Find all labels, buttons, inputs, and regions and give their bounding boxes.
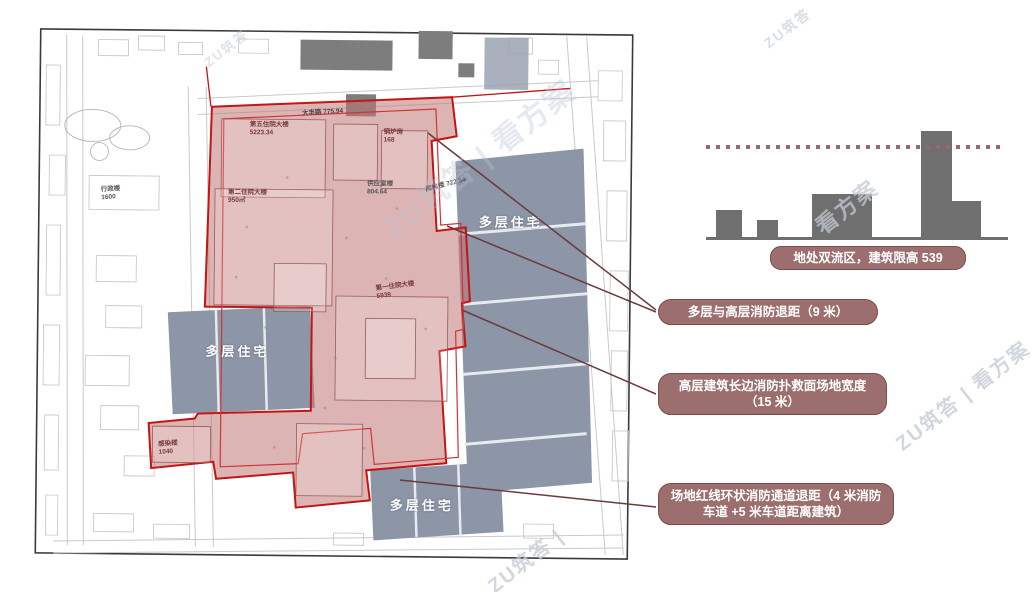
- callout-fire-setback: 多层与高层消防退距（9 米）: [658, 299, 878, 325]
- callout-rescue-site-width: 高层建筑长边消防扑救面场地宽度（15 米）: [658, 373, 887, 415]
- building-label-ward5: 第五住院大楼 5223.34: [250, 121, 289, 136]
- skyline-bar: [952, 201, 981, 237]
- page: 大丰路 775.94 第五住院大楼 5223.34 第二住院大楼 950㎡ 行政…: [0, 0, 1034, 592]
- watermark: ZU筑答 | 看方案: [888, 333, 1034, 456]
- skyline-bar: [716, 210, 742, 237]
- height-limit-caption: 地处双流区，建筑限高 539: [770, 246, 966, 270]
- skyline-baseline: [706, 237, 1008, 240]
- residential-label-bottom: 多层住宅: [390, 495, 454, 515]
- callout-ring-fire-lane: 场地红线环状消防通道退距（4 米消防车道 +5 米车道距离建筑）: [658, 483, 894, 525]
- building-label-ward2: 第二住院大楼 950㎡: [228, 189, 267, 204]
- skyline-diagram: [706, 126, 1008, 240]
- skyline-bar: [812, 194, 872, 237]
- skyline-bar: [757, 220, 778, 237]
- watermark: ZU筑答: [760, 3, 815, 52]
- residential-label-right: 多层住宅: [479, 211, 543, 231]
- residential-block-topright: [484, 38, 529, 90]
- height-limit-dashed-line: [706, 145, 1006, 149]
- site-plan: 大丰路 775.94 第五住院大楼 5223.34 第二住院大楼 950㎡ 行政…: [33, 25, 639, 563]
- building-label-admin: 行政楼 1600: [101, 185, 121, 201]
- building-label-infection: 感染楼 1040: [158, 440, 178, 456]
- building-label-supply: 供应室楼 804.64: [367, 180, 393, 195]
- building-label-boiler: 锅炉房 168: [384, 128, 404, 143]
- residential-label-left: 多层住宅: [205, 341, 269, 361]
